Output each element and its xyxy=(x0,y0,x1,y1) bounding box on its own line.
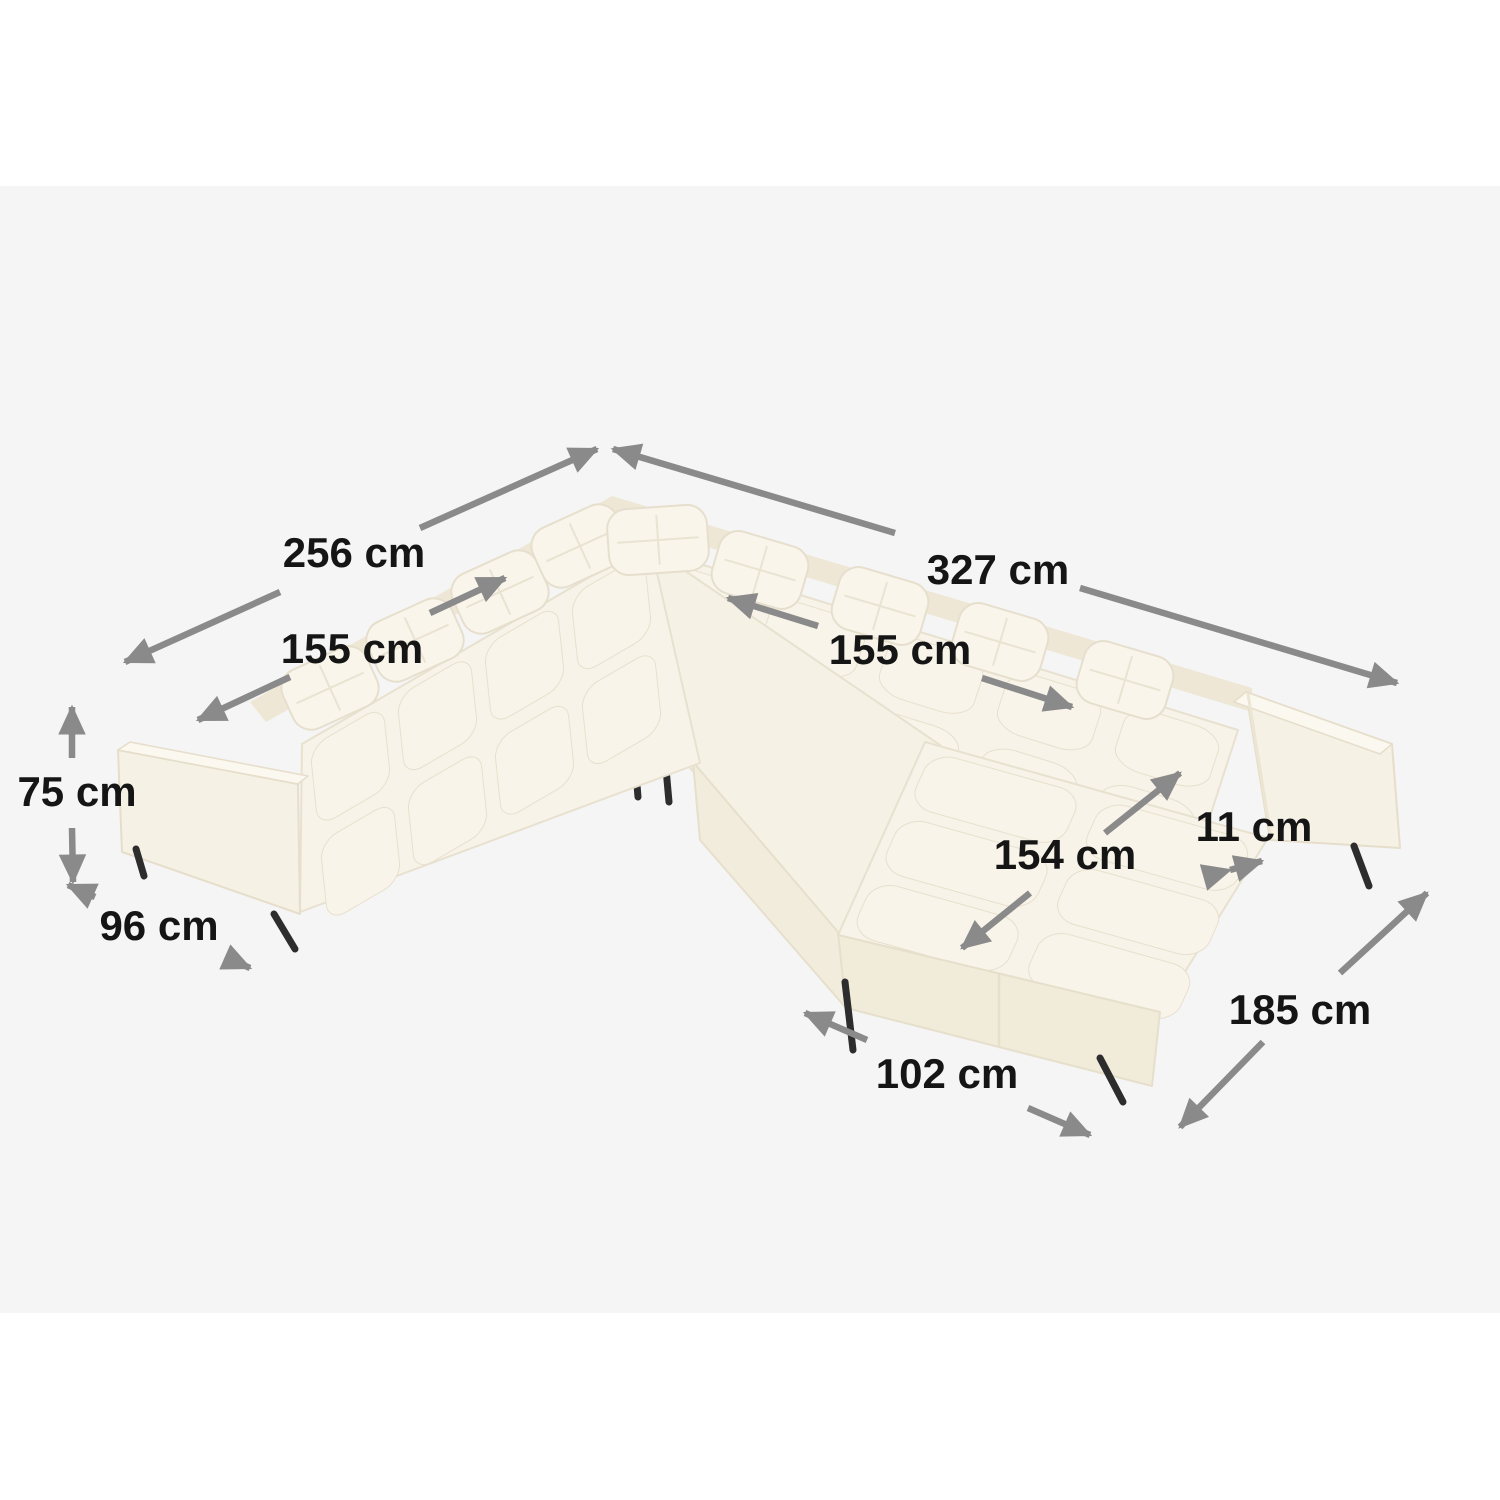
dim-side-depth-label: 185 cm xyxy=(1229,989,1371,1031)
dim-chaise-width-label: 102 cm xyxy=(876,1053,1018,1095)
dim-seat-left-label: 155 cm xyxy=(281,628,423,670)
dim-chaise-length-label: 154 cm xyxy=(994,834,1136,876)
dim-seat-right-label: 155 cm xyxy=(829,629,971,671)
dim-back-left-label: 256 cm xyxy=(283,532,425,574)
dim-armrest-width-label: 11 cm xyxy=(1196,806,1313,848)
product-dimension-diagram: 256 cm 327 cm 155 cm 155 cm 75 cm 96 cm … xyxy=(0,0,1500,1500)
dim-depth-label: 96 cm xyxy=(99,905,218,947)
sofa-and-dimensions-figure xyxy=(0,0,1500,1500)
sofa-corner-pillow xyxy=(606,504,710,577)
dim-height-label: 75 cm xyxy=(17,771,136,813)
sofa-illustration xyxy=(118,496,1400,1102)
dim-back-right-label: 327 cm xyxy=(927,549,1069,591)
sofa-left-armrest xyxy=(118,742,308,914)
